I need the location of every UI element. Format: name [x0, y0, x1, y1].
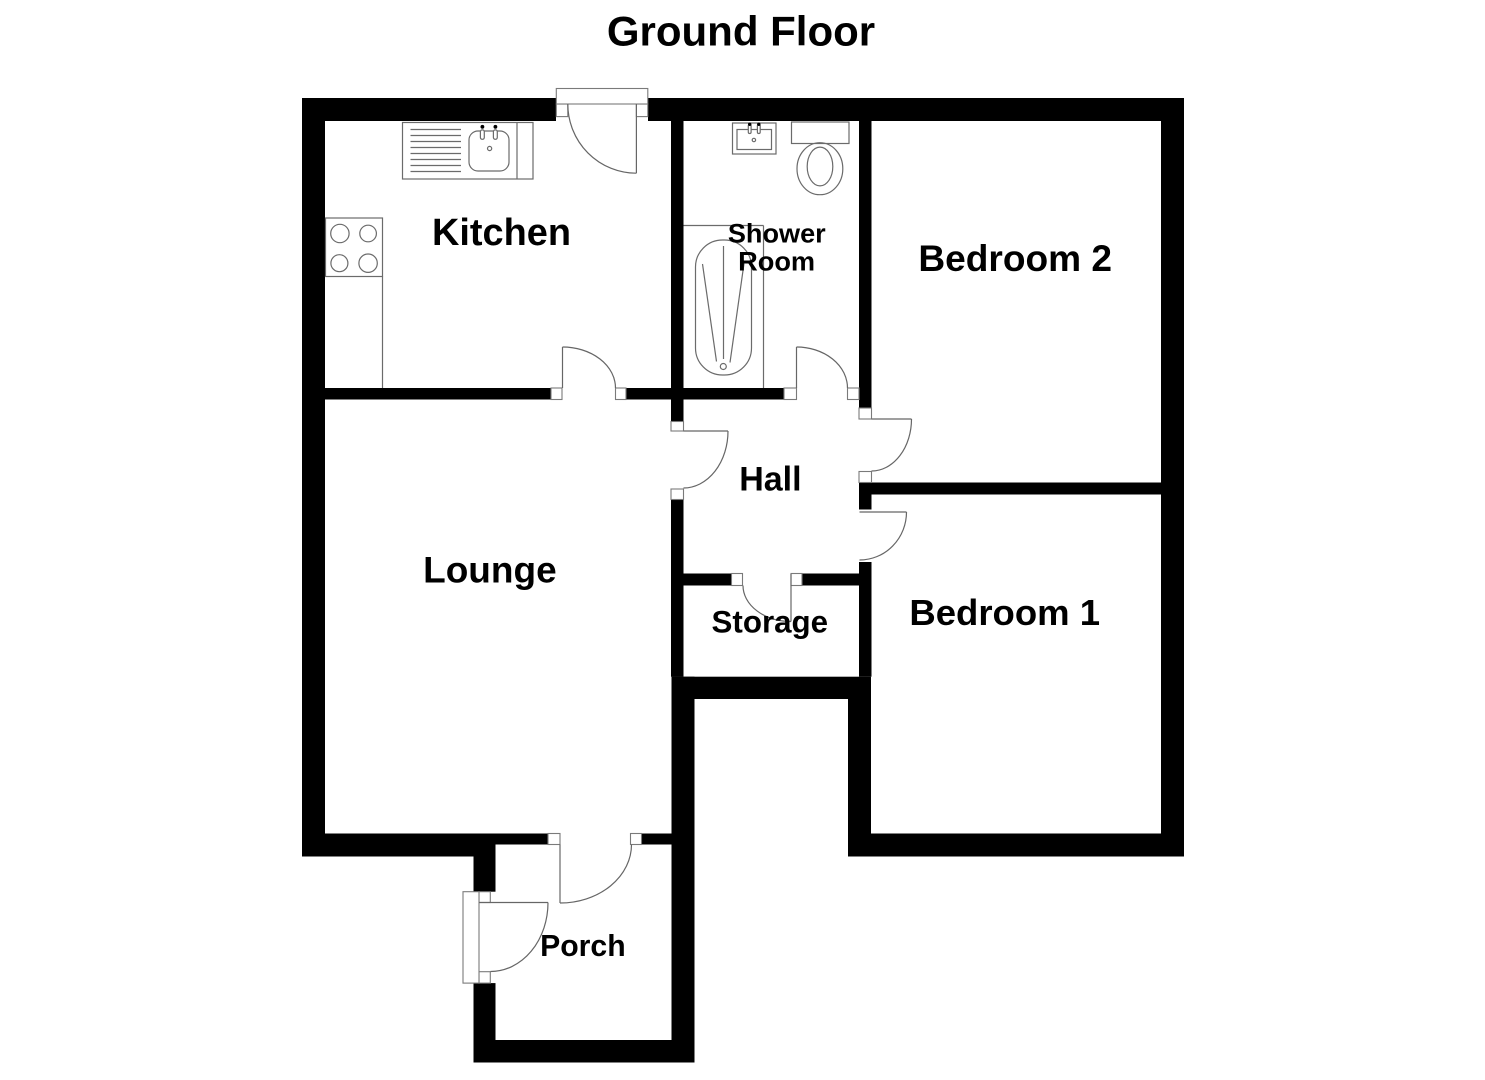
svg-text:Porch: Porch	[540, 930, 626, 963]
svg-text:Bedroom 1: Bedroom 1	[909, 592, 1100, 633]
svg-text:Ground Floor: Ground Floor	[607, 7, 875, 54]
svg-text:Room: Room	[738, 246, 815, 277]
svg-text:Hall: Hall	[739, 461, 801, 499]
svg-text:Shower: Shower	[728, 218, 826, 249]
svg-text:Lounge: Lounge	[423, 550, 557, 591]
svg-text:Storage: Storage	[712, 604, 829, 639]
svg-text:Bedroom 2: Bedroom 2	[918, 237, 1112, 279]
svg-text:Kitchen: Kitchen	[432, 212, 571, 254]
